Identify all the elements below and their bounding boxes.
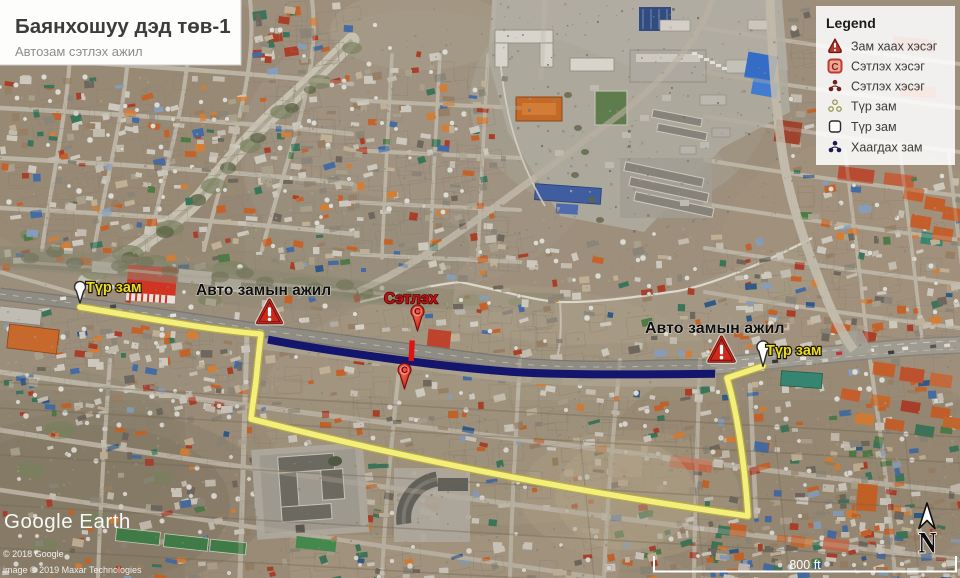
svg-text:Сэтлэх хэсэг: Сэтлэх хэсэг bbox=[851, 60, 925, 74]
svg-text:Авто замын ажил: Авто замын ажил bbox=[645, 320, 785, 337]
svg-text:C: C bbox=[414, 307, 421, 317]
svg-text:C: C bbox=[831, 62, 838, 73]
svg-text:© 2018 Google: © 2018 Google bbox=[3, 549, 64, 559]
svg-text:Автозам сэтлэх ажил: Автозам сэтлэх ажил bbox=[15, 44, 143, 59]
svg-text:Сэтлэх: Сэтлэх bbox=[384, 291, 438, 308]
svg-text:Түр зам: Түр зам bbox=[86, 280, 142, 296]
svg-text:Түр зам: Түр зам bbox=[851, 100, 897, 114]
svg-text:Google Earth: Google Earth bbox=[4, 510, 131, 533]
svg-text:C: C bbox=[401, 365, 408, 375]
svg-text:image © 2019 Maxar Technologie: image © 2019 Maxar Technologies bbox=[3, 565, 142, 575]
svg-text:800 ft: 800 ft bbox=[789, 558, 821, 572]
svg-text:Түр зам: Түр зам bbox=[851, 120, 897, 134]
svg-text:Хаагдах зам: Хаагдах зам bbox=[851, 141, 922, 155]
svg-text:Баянхошуу дэд төв-1: Баянхошуу дэд төв-1 bbox=[15, 15, 231, 38]
svg-text:Түр зам: Түр зам bbox=[766, 343, 822, 359]
svg-text:Сэтлэх хэсэг: Сэтлэх хэсэг bbox=[851, 80, 925, 94]
svg-text:Legend: Legend bbox=[826, 15, 876, 31]
svg-text:N: N bbox=[919, 527, 937, 560]
svg-text:Авто замын ажил: Авто замын ажил bbox=[196, 282, 331, 299]
svg-text:Зам хаах хэсэг: Зам хаах хэсэг bbox=[851, 40, 938, 54]
